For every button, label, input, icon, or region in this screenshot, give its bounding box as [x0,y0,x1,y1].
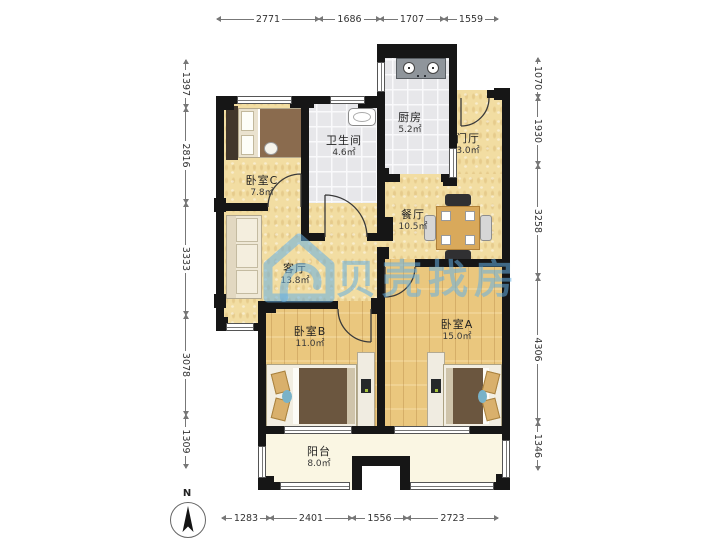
burner-dot [432,67,434,69]
dim-left-1: 1397 [179,60,192,108]
wall [449,44,457,148]
dim-value: 2816 [179,141,192,169]
dim-top-3: 1707 [380,13,444,26]
dim-value: 1309 [179,427,192,455]
wall [502,88,510,440]
dining-chair [424,215,436,241]
dim-left-5: 1309 [179,415,192,468]
dim-value: 1707 [398,13,426,26]
dim-right-2: 1930 [531,97,544,165]
dim-value: 1283 [232,512,260,525]
wall-pier [216,96,234,110]
dim-value: 1686 [335,13,363,26]
window [258,446,266,478]
plate [465,211,475,221]
dim-right-5: 1346 [531,422,544,470]
dim-right-4: 4306 [531,277,544,422]
wall-pier [494,88,510,100]
tv-light [365,389,368,392]
wall-pier [258,476,274,490]
stove-knob [417,75,419,77]
tv [431,379,441,393]
bed-footboard [347,368,355,424]
floorplan-canvas: 卧室C 7.8㎡ 卫生间 4.6㎡ 厨房 5.2㎡ 门厅 3.0㎡ 餐厅 10.… [0,0,720,540]
bed-blanket [299,368,347,424]
dim-value: 1346 [531,432,544,460]
stove [396,58,446,79]
bed-cushion [282,390,292,403]
dim-bottom-1: 1283 [222,512,270,525]
bed-bedroomB [266,364,357,428]
dim-value: 1559 [457,13,485,26]
sofa-cushion [236,218,258,242]
wall-pier [371,298,385,314]
dim-left-3: 3333 [179,203,192,315]
wall [377,44,457,58]
wall-pier [214,294,226,308]
window [226,323,254,331]
bed-bedroomA [443,364,502,428]
sofa-cushion [236,244,258,268]
bed-lamp [264,142,278,155]
bathroom-sink [348,108,376,126]
dining-set [424,194,492,262]
window [502,440,510,478]
dim-bottom-2: 2401 [270,512,352,525]
wall-notch [352,456,362,490]
dim-right-3: 3258 [531,165,544,277]
stove-knob [424,75,426,77]
wardrobe-bedroomB [357,352,375,428]
dim-value: 3333 [179,245,192,273]
bed-footboard [446,368,453,424]
burner-dot [408,67,410,69]
dim-top-4: 1559 [444,13,498,26]
window [284,426,352,434]
wall [258,301,266,446]
bed-bedroomC [226,106,304,160]
balcony-notch [362,466,400,492]
wall-pier [258,301,276,313]
dim-left-2: 2816 [179,108,192,203]
wall-pier [214,198,226,212]
window [237,96,292,104]
sink-basin [353,112,371,122]
wall-pier [290,96,314,108]
dim-value: 1070 [531,64,544,92]
window [449,148,457,178]
plate [465,235,475,245]
dim-left-4: 3078 [179,315,192,415]
sofa-backrest [227,216,236,298]
bed-headboard [226,106,238,160]
window [394,426,470,434]
wall-pier [377,168,389,182]
dim-value: 1930 [531,117,544,145]
dim-value: 2723 [438,512,466,525]
tv-light [435,389,438,392]
dim-right-1: 1070 [531,58,544,97]
dining-chair [445,194,471,206]
wall [415,259,502,267]
dim-value: 2401 [297,512,325,525]
bed-pillow [241,111,254,131]
wall [301,96,309,241]
dim-top-2: 1686 [319,13,380,26]
wall-notch [400,456,410,490]
dim-bottom-3: 1556 [352,512,407,525]
dim-value: 3258 [531,207,544,235]
compass-north-label: N [170,488,204,499]
wall-pier [377,247,389,259]
plate [441,211,451,221]
wall-pier [377,217,393,241]
compass-needle-icon [171,503,205,537]
sofa [226,215,262,299]
window [330,96,365,104]
bed-pillow [241,135,254,155]
room-hall-floor [449,90,510,182]
dim-value: 2771 [254,13,282,26]
wall [377,251,385,434]
dining-chair [480,215,492,241]
tv [361,379,371,393]
dim-value: 3078 [179,351,192,379]
wall [352,426,394,434]
plate [441,235,451,245]
dim-value: 1397 [179,70,192,98]
window [377,62,385,92]
wall [377,44,385,62]
dim-top-1: 2771 [217,13,319,26]
window [410,482,494,490]
dim-bottom-4: 2723 [407,512,498,525]
bed-cushion [478,390,487,403]
dim-value: 1556 [365,512,393,525]
compass-circle [170,502,206,538]
dim-value: 4306 [531,335,544,363]
sofa-cushion [236,270,258,294]
window [280,482,350,490]
